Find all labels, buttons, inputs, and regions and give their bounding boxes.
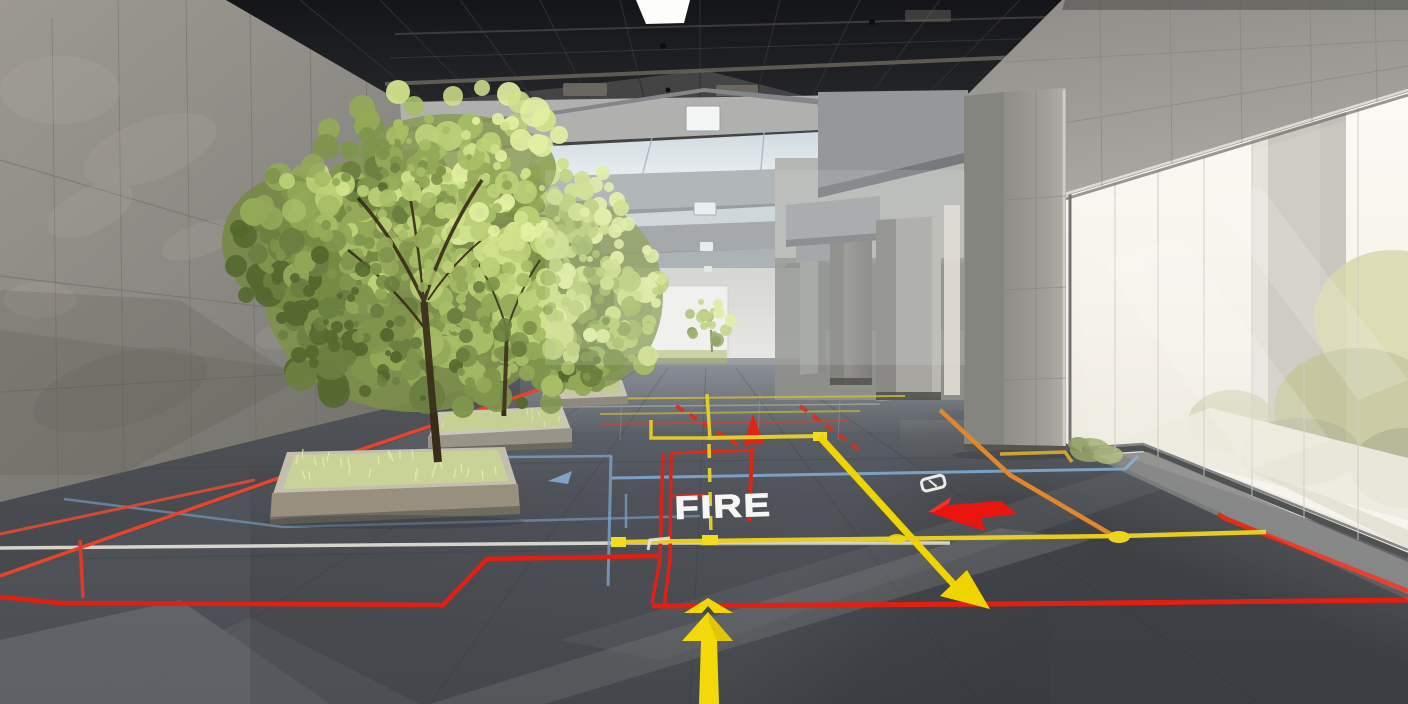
svg-text:FIRE: FIRE xyxy=(674,488,772,527)
